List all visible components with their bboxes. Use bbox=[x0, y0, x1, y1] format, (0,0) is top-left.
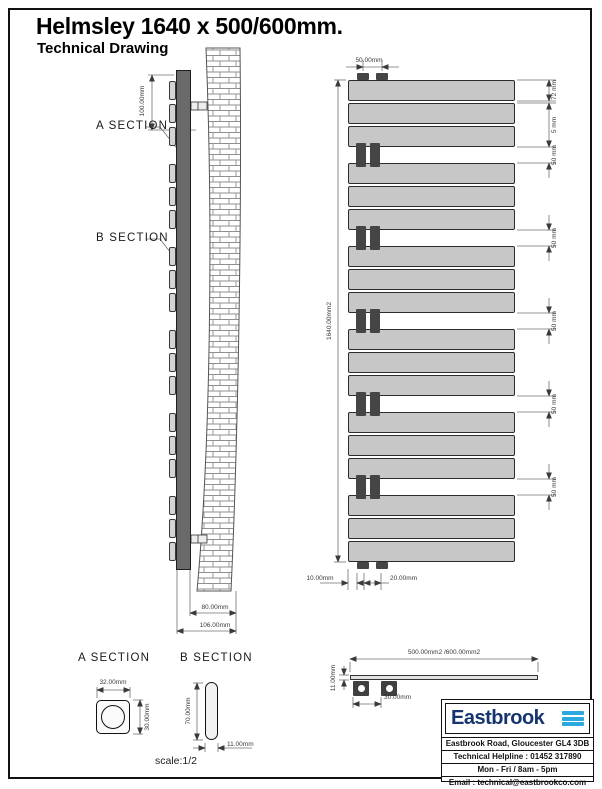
dim-plan-depth: 11.00mm bbox=[330, 657, 338, 699]
dim-depth: 80.00mm bbox=[194, 604, 236, 612]
technical-drawing-page: Helmsley 1640 x 500/600mm. Technical Dra… bbox=[0, 0, 602, 789]
dim-tube-gap: 20.00mm bbox=[390, 575, 436, 583]
side-b-section-label: B SECTION bbox=[96, 232, 169, 244]
dim-panel-height: 72 mm bbox=[551, 75, 559, 105]
dim-section-b-height: 70.00mm bbox=[185, 690, 193, 732]
info-address: Eastbrook Road, Gloucester GL4 3DB bbox=[442, 737, 593, 750]
dim-group-gap: 50 mm bbox=[551, 142, 559, 168]
drawing-lines bbox=[0, 0, 602, 789]
dim-group-gap: 50 mm bbox=[551, 225, 559, 251]
dim-plan-tube-pitch: 30.00mm bbox=[384, 694, 430, 702]
manufacturer-info-box: Eastbrook Eastbrook Road, Gloucester GL4… bbox=[441, 699, 594, 782]
brand-logo: Eastbrook bbox=[445, 703, 590, 734]
wall-section bbox=[197, 48, 241, 591]
dim-group-gap: 50 mm bbox=[551, 474, 559, 500]
dim-section-b-width: 11.00mm bbox=[227, 741, 269, 749]
info-helpline: Technical Helpline : 01452 317890 bbox=[442, 750, 593, 763]
section-b-title: B SECTION bbox=[180, 652, 253, 664]
brand-name: Eastbrook bbox=[451, 707, 544, 730]
dim-section-a-height: 30.00mm bbox=[144, 696, 152, 738]
dim-group-gap: 50 mm bbox=[551, 391, 559, 417]
dim-overall-depth: 106.00mm bbox=[192, 622, 238, 630]
dim-panel-gap: 5 mm bbox=[551, 112, 559, 138]
dim-group-gap: 50 mm bbox=[551, 308, 559, 334]
side-a-section-label: A SECTION bbox=[96, 120, 168, 132]
info-hours: Mon - Fri / 8am - 5pm bbox=[442, 763, 593, 776]
dim-tube-spacing: 50.00mm bbox=[347, 57, 391, 65]
dim-bottom-offset: 10.00mm bbox=[297, 575, 343, 583]
eastbrook-waves-icon bbox=[562, 710, 584, 727]
scale-label: scale:1/2 bbox=[155, 755, 197, 767]
section-a-title: A SECTION bbox=[78, 652, 150, 664]
info-email: Email : technical@eastbrookco.com bbox=[442, 776, 593, 789]
dim-wall-offset: 100.00mm bbox=[139, 80, 147, 122]
dim-section-a-width: 32.00mm bbox=[92, 679, 134, 687]
dim-overall-height: 1640.00mm2 bbox=[326, 293, 334, 349]
dim-plan-width: 500.00mm2 /600.00mm2 bbox=[389, 649, 499, 657]
